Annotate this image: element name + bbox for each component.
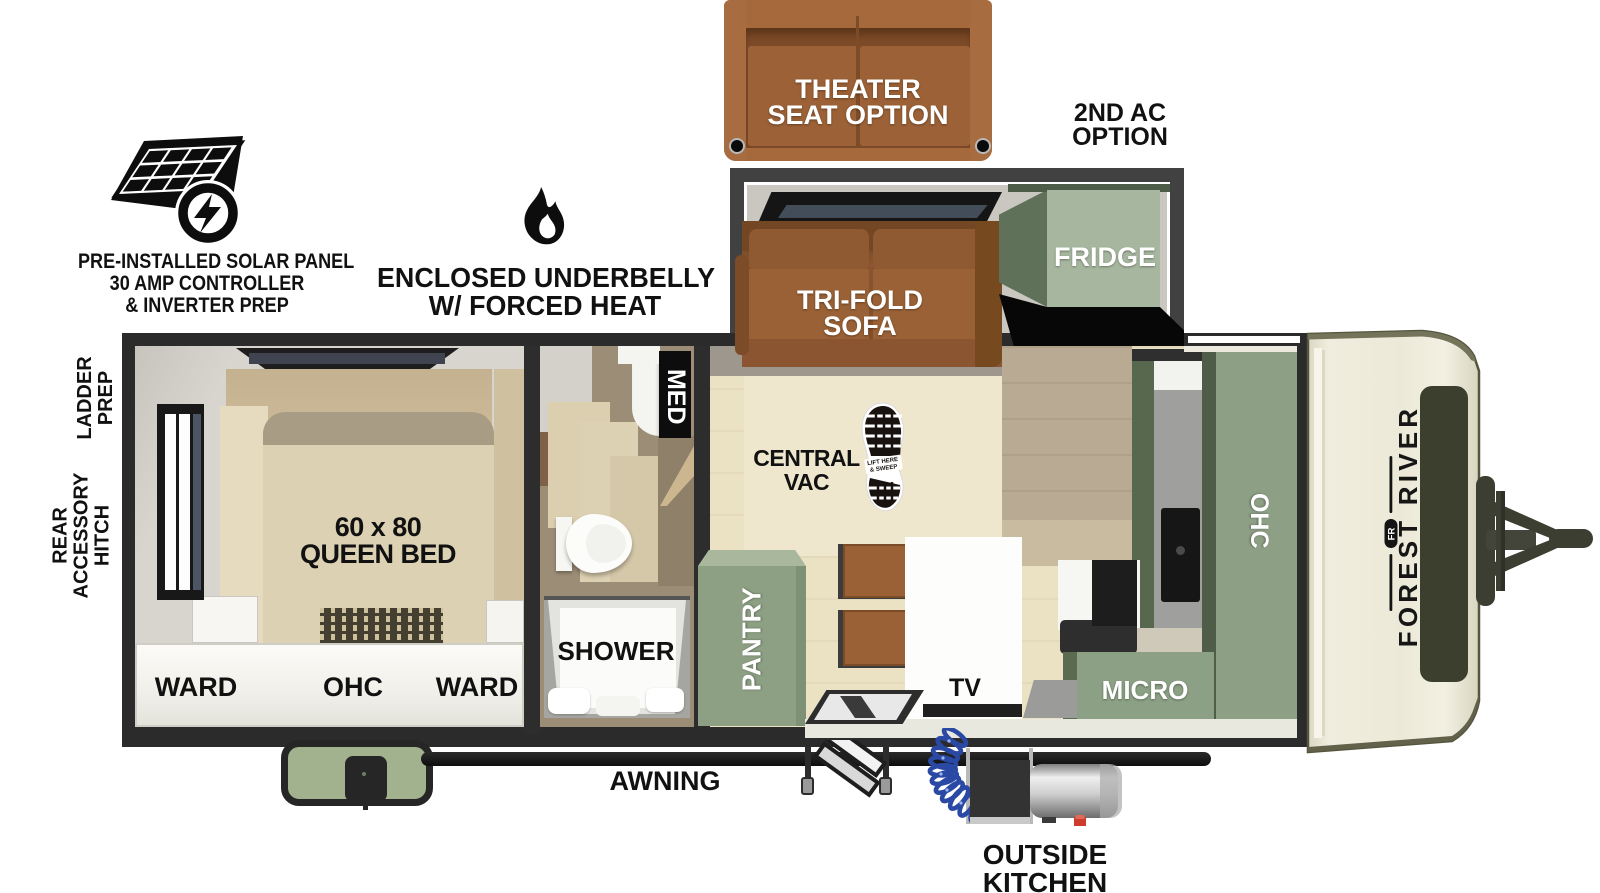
svg-text:FOREST RIVER: FOREST RIVER (1393, 405, 1423, 648)
